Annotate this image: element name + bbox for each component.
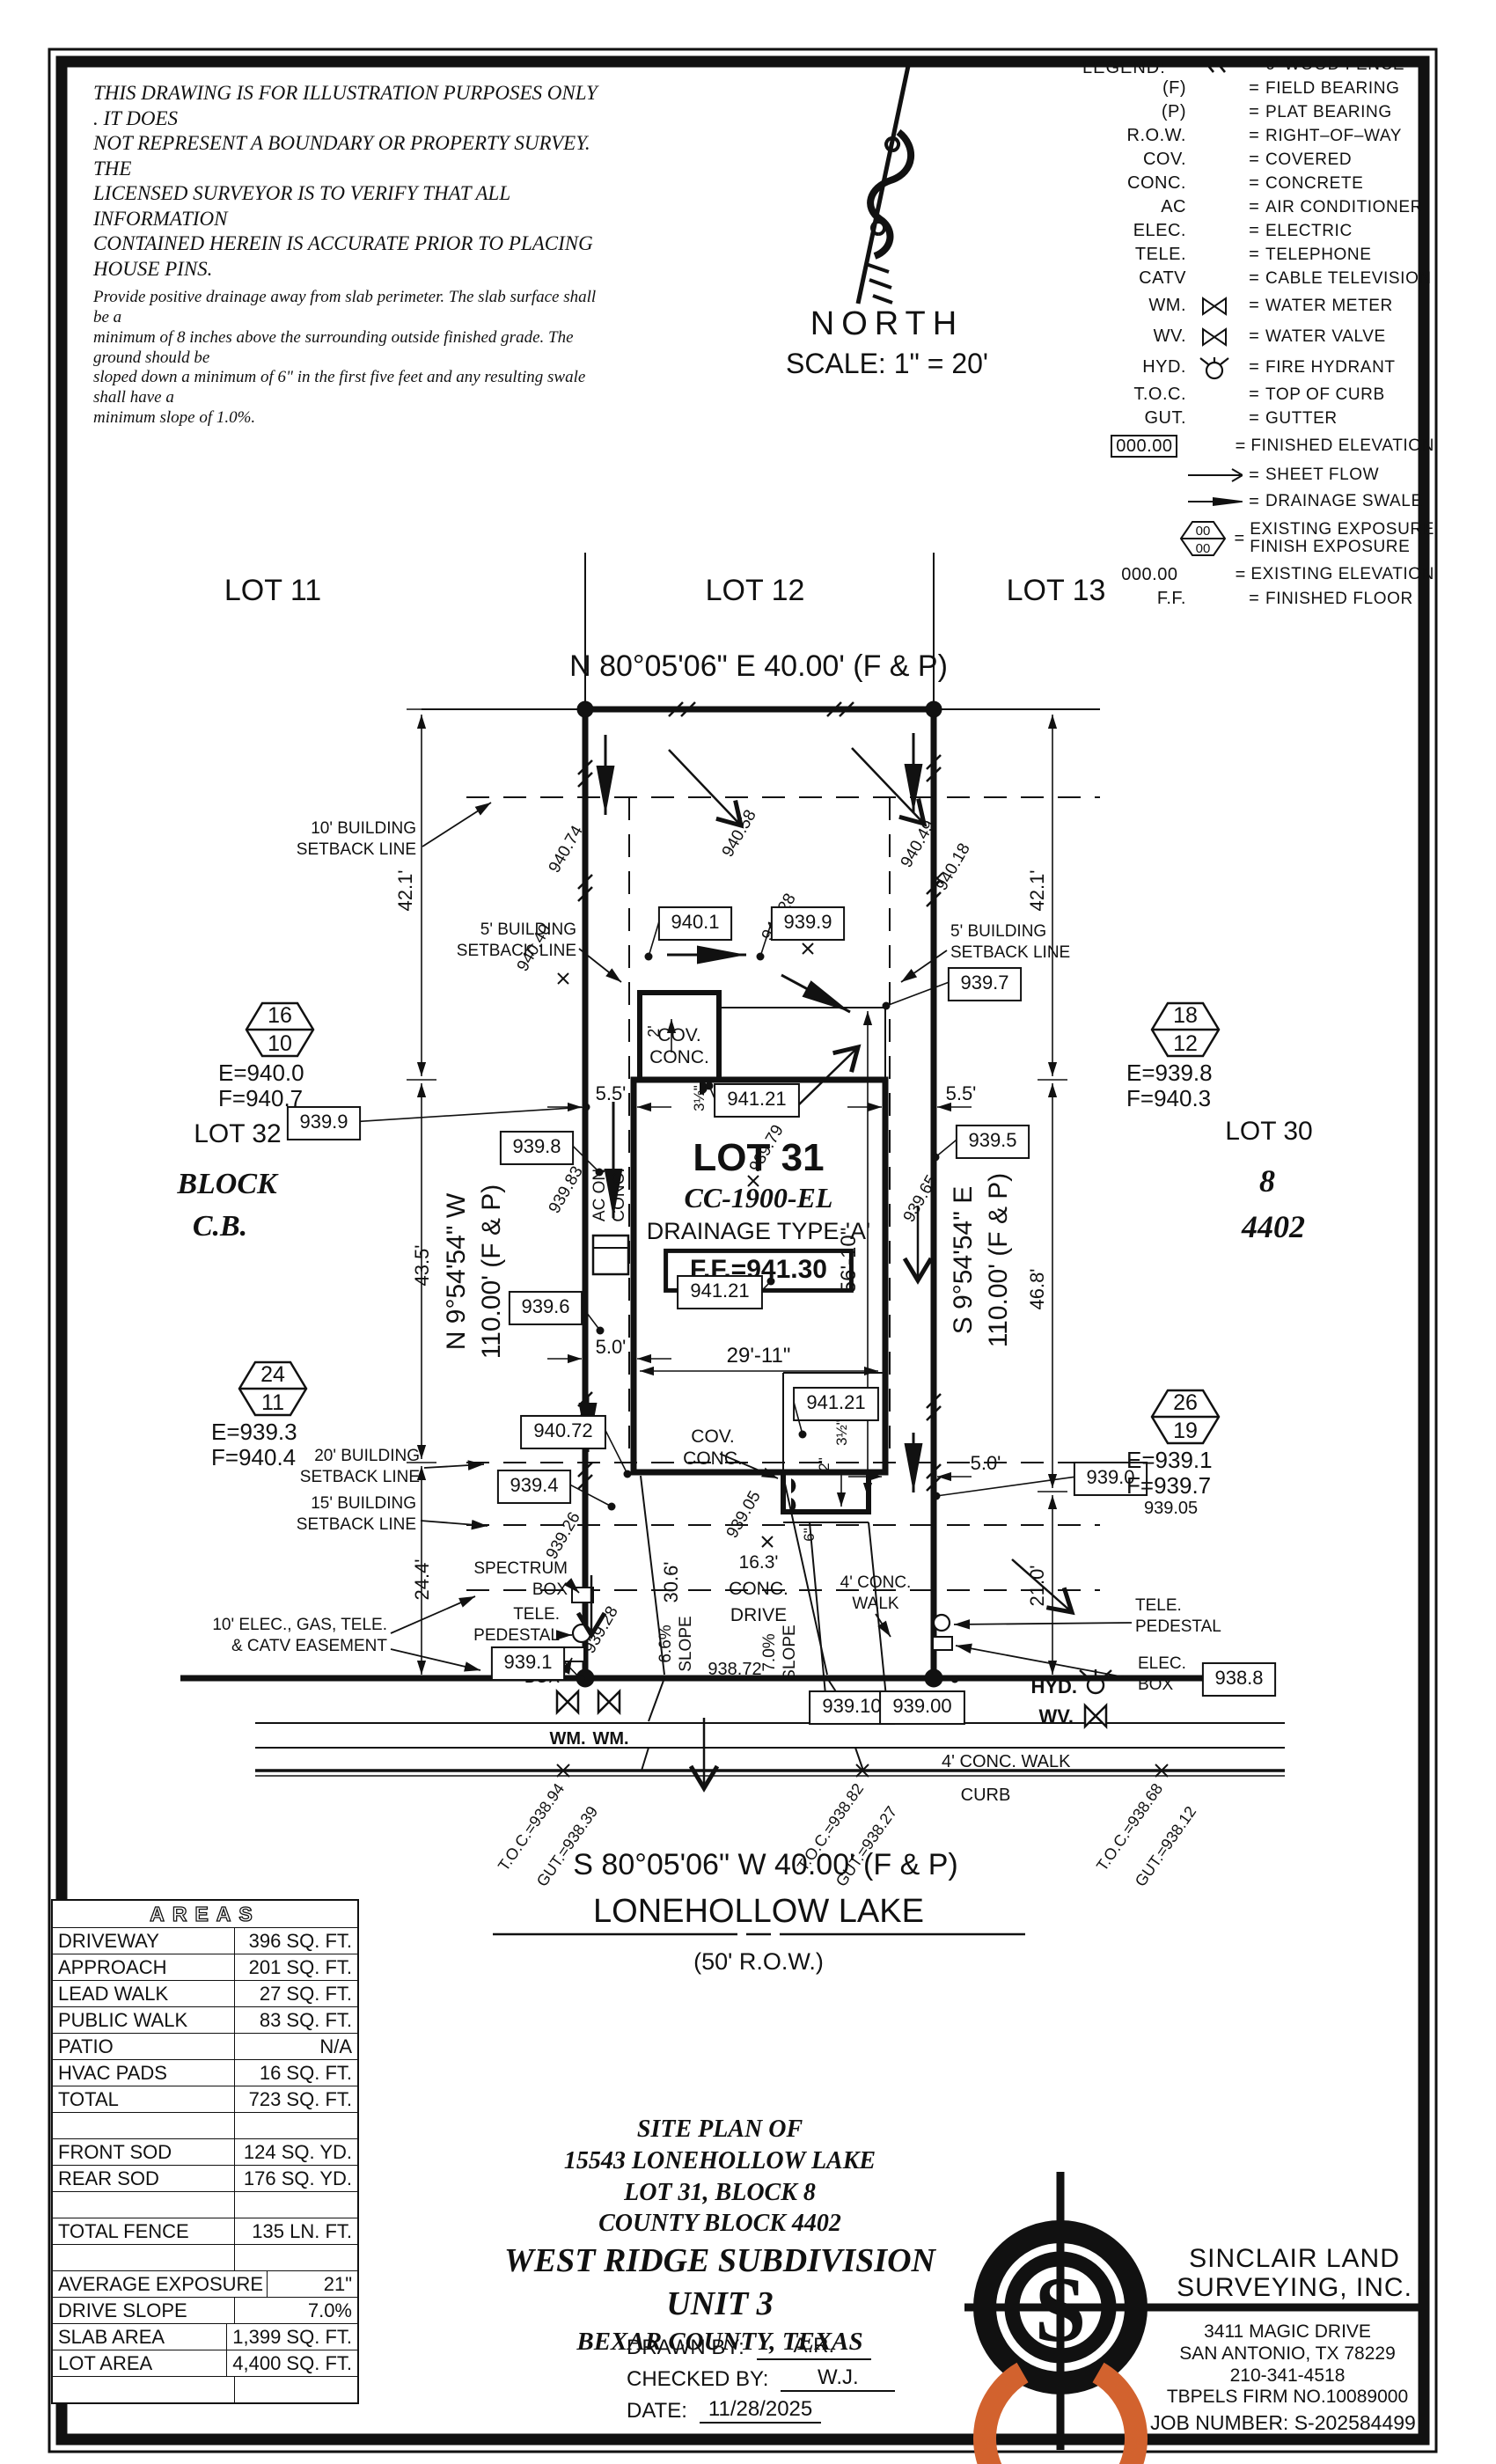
svg-text:00: 00 xyxy=(1196,524,1211,539)
plan-text-86: 30.6' xyxy=(660,1561,682,1602)
plan-text-42: CC-1900-EL xyxy=(685,1182,833,1214)
areas-label: DRIVE SLOPE xyxy=(53,2298,235,2323)
disclaimer-line: minimum of 8 inches above the surroundin… xyxy=(93,328,604,369)
areas-value: 723 SQ. FT. xyxy=(235,2088,357,2111)
leader-dot xyxy=(951,1676,959,1683)
legend-item-14: GUT.=GUTTER xyxy=(1079,407,1434,430)
plan-text-100: ELEC. xyxy=(1138,1654,1186,1673)
plan-text-73: 939.4 xyxy=(510,1474,558,1496)
plan-text-30: 939.9 xyxy=(299,1111,348,1133)
areas-row-7 xyxy=(53,2112,357,2138)
plan-text-107: WV. xyxy=(1038,1705,1074,1727)
legend-item-17: =DRAINAGE SWALE xyxy=(1079,488,1434,515)
legend-desc: CONCRETE xyxy=(1265,175,1363,193)
plan-text-92: SLOPE xyxy=(677,1616,695,1671)
titleblock-line-0: SITE PLAN OF xyxy=(456,2114,984,2145)
plan-text-2: LOT 11 xyxy=(224,574,321,607)
plan-text-52: 939.6 xyxy=(521,1295,569,1317)
areas-label: DRIVEWAY xyxy=(53,1928,235,1954)
areas-value: 4,400 SQ. FT. xyxy=(227,2352,357,2375)
legend-desc: WATER METER xyxy=(1265,297,1393,315)
areas-row-4: PATION/A xyxy=(53,2033,357,2059)
company-job-number: JOB NUMBER: S-202584499 xyxy=(1132,2411,1434,2435)
company-address-line-1: SAN ANTONIO, TX 78229 xyxy=(1146,2343,1429,2365)
legend-desc: FIRE HYDRANT xyxy=(1265,359,1396,377)
leader-dot xyxy=(883,1002,891,1010)
exposure-hex-value: 26 xyxy=(1173,1390,1198,1415)
exposure-elevation: E=939.3 xyxy=(211,1419,297,1445)
areas-value: 27 SQ. FT. xyxy=(235,1983,357,2006)
plan-text-23: COV. xyxy=(657,1025,700,1045)
exposure-hex-value: 16 xyxy=(268,1003,292,1028)
areas-label xyxy=(53,2192,235,2218)
areas-row-1: APPROACH201 SQ. FT. xyxy=(53,1954,357,1980)
areas-row-14: DRIVE SLOPE7.0% xyxy=(53,2297,357,2323)
leader-dot xyxy=(932,1154,940,1162)
plan-text-0: NORTH xyxy=(810,305,964,342)
legend-equals: = xyxy=(1243,221,1265,241)
exposure-elevation: F=940.7 xyxy=(218,1085,303,1111)
legend-abbr: F.F. xyxy=(1079,589,1186,609)
signature-block: DRAWN BY: A.R. CHECKED BY: W.J. DATE: 11… xyxy=(627,2334,895,2429)
leader-line xyxy=(649,921,659,957)
legend-desc: CABLE TELEVISION xyxy=(1265,270,1432,288)
disclaimer-paragraph-2: Provide positive drainage away from slab… xyxy=(93,288,604,429)
plan-text-17: SETBACK LINE xyxy=(457,942,576,960)
disclaimer-line: CONTAINED HEREIN IS ACCURATE PRIOR TO PL… xyxy=(93,231,604,282)
exposure-hex-value: 24 xyxy=(260,1362,285,1387)
plan-text-53: 941.21 xyxy=(690,1280,749,1302)
date-label: DATE: xyxy=(627,2399,687,2424)
company-address: 3411 MAGIC DRIVESAN ANTONIO, TX 78229210… xyxy=(1146,2321,1429,2409)
areas-value: 7.0% xyxy=(235,2299,357,2322)
areas-value: 176 SQ. YD. xyxy=(235,2167,357,2190)
legend-rows: =6' WOOD FENCE(F)=FIELD BEARING(P)=PLAT … xyxy=(1079,53,1434,611)
plan-text-70: SETBACK LINE xyxy=(300,1468,420,1486)
legend-desc: EXISTING ELEVATION xyxy=(1250,566,1434,583)
leader-dot xyxy=(933,1492,941,1500)
arrow-icon xyxy=(1186,467,1243,483)
legend-abbr: AC xyxy=(1079,197,1186,217)
plan-text-10: 42.1' xyxy=(1026,869,1048,911)
plan-text-106: HYD. xyxy=(1030,1676,1077,1698)
plan-text-26: 941.21 xyxy=(727,1088,786,1110)
legend-abbr: WM. xyxy=(1079,296,1186,316)
legend-equals: = xyxy=(1243,78,1265,99)
legend-item-19: 000.00=EXISTING ELEVATION xyxy=(1079,562,1434,587)
drawn-by-row: DRAWN BY: A.R. xyxy=(627,2334,895,2360)
plan-text-76: 21.0' xyxy=(1026,1565,1048,1606)
legend-abbr: (P) xyxy=(1079,102,1186,122)
legend-desc: FIELD BEARING xyxy=(1265,80,1399,98)
legend-equals: = xyxy=(1243,385,1265,405)
titleblock-line-3: COUNTY BLOCK 4402 xyxy=(456,2208,984,2240)
plan-text-6: 940.74 xyxy=(546,822,587,876)
disclaimer-line: sloped down a minimum of 6" in the first… xyxy=(93,368,604,408)
areas-label xyxy=(53,2113,235,2138)
plan-text-113: LONEHOLLOW LAKE xyxy=(593,1893,924,1930)
plan-text-35: LOT 32 xyxy=(194,1119,282,1148)
leader-line xyxy=(360,1107,586,1121)
plan-text-20: 940.1 xyxy=(671,911,719,933)
areas-label: SLAB AREA xyxy=(53,2324,227,2350)
plan-text-83: 10' ELEC., GAS, TELE. xyxy=(212,1616,387,1634)
plan-text-71: 15' BUILDING xyxy=(311,1494,416,1513)
plan-text-64: 2" xyxy=(816,1457,832,1471)
plan-text-37: C.B. xyxy=(193,1210,247,1243)
legend-item-15: 000.00=FINISHED ELEVATION xyxy=(1079,430,1434,462)
plan-text-105: WM. xyxy=(592,1729,628,1749)
areas-row-11: TOTAL FENCE135 LN. FT. xyxy=(53,2218,357,2244)
plan-text-91: 6.6% xyxy=(656,1624,675,1662)
leader-dot xyxy=(624,1470,632,1478)
legend-item-9: CATV=CABLE TELEVISION xyxy=(1079,267,1434,290)
areas-label: TOTAL xyxy=(53,2086,235,2112)
plan-text-109: 939.00 xyxy=(892,1695,951,1717)
legend-equals: = xyxy=(1243,150,1265,170)
plan-text-12: SETBACK LINE xyxy=(297,840,416,859)
legend-desc: EXISTING EXPOSUREFINISH EXPOSURE xyxy=(1250,521,1434,556)
plan-text-55: 56'-10" xyxy=(837,1228,861,1293)
plan-text-89: CONC. xyxy=(729,1579,788,1599)
plan-text-69: 20' BUILDING xyxy=(314,1447,420,1465)
legend-item-1: (F)=FIELD BEARING xyxy=(1079,77,1434,100)
legend-desc: TELEPHONE xyxy=(1265,246,1372,264)
areas-value: 83 SQ. FT. xyxy=(235,2009,357,2032)
legend-equals: = xyxy=(1243,55,1265,75)
titleblock-line-4: WEST RIDGE SUBDIVISION xyxy=(456,2240,984,2283)
plan-text-25: 2' xyxy=(645,1025,663,1037)
plan-text-79: TELE. xyxy=(513,1605,560,1624)
company-name-line1: SINCLAIR LAND xyxy=(1158,2244,1431,2273)
areas-label: REAR SOD xyxy=(53,2166,235,2191)
plan-text-16: 5' BUILDING xyxy=(480,920,576,939)
checked-by-value: W.J. xyxy=(781,2365,895,2392)
legend-desc: SHEET FLOW xyxy=(1265,466,1379,484)
legend-desc: FINISHED FLOOR xyxy=(1265,590,1413,608)
tele-pedestal-right-icon xyxy=(934,1615,950,1631)
plan-text-21: 939.9 xyxy=(783,911,832,933)
leader-dot xyxy=(583,1104,590,1111)
logo-letter: S xyxy=(1035,2258,1087,2361)
leader-line xyxy=(886,982,949,1006)
plan-text-88: 16.3' xyxy=(739,1552,779,1573)
plan-text-48: S 9°54'54" E xyxy=(949,1186,978,1335)
plan-text-80: PEDESTAL xyxy=(473,1626,560,1645)
exposure-elevation: E=939.1 xyxy=(1126,1447,1213,1473)
leader-dot xyxy=(597,1327,605,1335)
leader-dot xyxy=(799,1431,807,1439)
legend-equals: = xyxy=(1243,326,1265,347)
plan-text-111: CURB xyxy=(961,1786,1011,1805)
legend-desc: RIGHT–OF–WAY xyxy=(1265,128,1402,145)
areas-value: 21" xyxy=(268,2273,357,2296)
areas-row-0: DRIVEWAY396 SQ. FT. xyxy=(53,1927,357,1954)
plan-text-60: COV. xyxy=(691,1426,734,1447)
water-meter-icon xyxy=(598,1691,620,1712)
plan-text-40: 4402 xyxy=(1241,1209,1305,1244)
plan-text-96: 4' CONC. xyxy=(840,1573,912,1592)
plan-text-27: 3½" xyxy=(691,1085,708,1111)
plan-text-97: WALK xyxy=(852,1595,898,1613)
leader-dot xyxy=(767,1278,775,1286)
legend-item-5: CONC.=CONCRETE xyxy=(1079,172,1434,195)
plan-text-72: SETBACK LINE xyxy=(297,1515,416,1534)
exposure-hex-value: 19 xyxy=(1173,1419,1198,1443)
plan-text-33: AC ON xyxy=(590,1169,609,1221)
areas-row-12 xyxy=(53,2244,357,2270)
exposure-hex-value: 12 xyxy=(1173,1031,1198,1056)
legend: LEGEND: =6' WOOD FENCE(F)=FIELD BEARING(… xyxy=(1079,53,1434,611)
legend-item-10: WM.=WATER METER xyxy=(1079,290,1434,321)
plan-text-75: 24.4' xyxy=(411,1558,433,1600)
areas-value: 124 SQ. YD. xyxy=(235,2141,357,2164)
plan-text-94: SLOPE xyxy=(781,1624,799,1680)
legend-equals: = xyxy=(1243,102,1265,122)
areas-value: N/A xyxy=(235,2035,357,2058)
plan-text-28: 5.5' xyxy=(596,1082,627,1104)
disclaimer-line: THIS DRAWING IS FOR ILLUSTRATION PURPOSE… xyxy=(93,81,604,131)
leader-line xyxy=(936,1477,1074,1496)
plan-text-22: 939.7 xyxy=(960,972,1008,994)
swale-icon xyxy=(1186,494,1243,510)
legend-item-4: COV.=COVERED xyxy=(1079,148,1434,172)
exposure-hex-value: 11 xyxy=(261,1390,284,1415)
site-plan-sheet: { "colors": { "accent": "#d2622e", "ink"… xyxy=(0,0,1496,2464)
svg-text:00: 00 xyxy=(1196,541,1211,556)
areas-table: AREAS DRIVEWAY396 SQ. FT.APPROACH201 SQ.… xyxy=(51,1899,359,2404)
legend-desc: PLAT BEARING xyxy=(1265,104,1392,121)
areas-value: 1,399 SQ. FT. xyxy=(227,2326,357,2349)
plan-text-102: 939.1 xyxy=(503,1651,552,1673)
plan-text-65: 6" xyxy=(801,1528,818,1542)
legend-equals: = xyxy=(1243,357,1265,378)
plan-text-87: 939.05 xyxy=(723,1488,765,1542)
disclaimer-paragraph-1: THIS DRAWING IS FOR ILLUSTRATION PURPOSE… xyxy=(93,81,604,282)
plan-text-74: 939.26 xyxy=(543,1509,584,1563)
plan-text-9: 42.1' xyxy=(394,869,416,911)
plan-text-77: SPECTRUM xyxy=(473,1559,568,1578)
leader-dot xyxy=(608,1503,616,1511)
plan-text-49: 110.00' (F & P) xyxy=(984,1173,1013,1348)
plan-text-61: CONC. xyxy=(683,1448,743,1469)
legend-item-6: AC=AIR CONDITIONER xyxy=(1079,195,1434,219)
water-meter-icon xyxy=(557,1691,578,1712)
legend-item-8: TELE.=TELEPHONE xyxy=(1079,243,1434,267)
leader-line xyxy=(935,1140,957,1157)
plan-text-50: 43.5' xyxy=(411,1244,433,1286)
legend-desc: ELECTRIC xyxy=(1265,223,1353,240)
legend-item-3: R.O.W.=RIGHT–OF–WAY xyxy=(1079,124,1434,148)
exposure-elevation: F=939.7 xyxy=(1126,1472,1211,1499)
plan-text-95: 938.72 xyxy=(708,1660,761,1679)
legend-equals: = xyxy=(1243,126,1265,146)
areas-label: LOT AREA xyxy=(53,2350,227,2376)
plan-text-59: 940.72 xyxy=(533,1419,592,1441)
legend-equals: = xyxy=(1243,589,1265,609)
legend-item-12: HYD.=FIRE HYDRANT xyxy=(1079,352,1434,383)
leader-line xyxy=(605,1430,627,1474)
legend-equals: = xyxy=(1243,408,1265,429)
legend-equals: = xyxy=(1243,466,1265,486)
plan-text-11: 10' BUILDING xyxy=(311,819,416,838)
exposure-elevation: E=939.8 xyxy=(1126,1060,1213,1086)
bowtie-icon xyxy=(1186,296,1243,317)
plan-text-36: BLOCK xyxy=(176,1168,279,1200)
plan-text-46: N 9°54'54" W xyxy=(442,1192,471,1350)
titleblock-line-2: LOT 31, BLOCK 8 xyxy=(456,2177,984,2209)
checked-by-label: CHECKED BY: xyxy=(627,2367,768,2392)
legend-equals: = xyxy=(1243,197,1265,217)
plan-text-110: 4' CONC. WALK xyxy=(942,1752,1071,1771)
legend-equals: = xyxy=(1229,436,1250,457)
legend-equals: = xyxy=(1243,268,1265,289)
titleblock-line-5: UNIT 3 xyxy=(456,2283,984,2326)
disclaimer-note: THIS DRAWING IS FOR ILLUSTRATION PURPOSE… xyxy=(93,81,604,429)
areas-label: TOTAL FENCE xyxy=(53,2218,235,2244)
legend-abbr: T.O.C. xyxy=(1079,385,1186,405)
plan-text-29: 5.5' xyxy=(946,1082,977,1104)
company-name: SINCLAIR LAND SURVEYING, INC. xyxy=(1158,2244,1431,2302)
areas-row-5: HVAC PADS16 SQ. FT. xyxy=(53,2059,357,2086)
plan-text-84: & CATV EASEMENT xyxy=(231,1637,387,1655)
legend-desc: TOP OF CURB xyxy=(1265,386,1385,404)
leader-line xyxy=(570,1485,612,1507)
areas-row-9: REAR SOD176 SQ. YD. xyxy=(53,2165,357,2191)
areas-label: LEAD WALK xyxy=(53,1981,235,2006)
areas-label: HVAC PADS xyxy=(53,2060,235,2086)
plan-text-19: SETBACK LINE xyxy=(950,943,1070,962)
legend-item-18: 0000=EXISTING EXPOSUREFINISH EXPOSURE xyxy=(1079,515,1434,562)
areas-value: 201 SQ. FT. xyxy=(235,1956,357,1979)
plan-text-103: 938.8 xyxy=(1214,1667,1263,1689)
areas-row-2: LEAD WALK27 SQ. FT. xyxy=(53,1980,357,2006)
areas-value: 135 LN. FT. xyxy=(235,2220,357,2243)
areas-label xyxy=(53,2245,235,2270)
legend-equals: = xyxy=(1228,529,1250,549)
legend-item-20: F.F.=FINISHED FLOOR xyxy=(1079,587,1434,611)
legend-desc: DRAINAGE SWALE xyxy=(1265,493,1423,510)
plan-text-78: BOX xyxy=(532,1580,568,1599)
title-block: SITE PLAN OF15543 LONEHOLLOW LAKELOT 31,… xyxy=(456,2114,984,2358)
plan-text-66: 5.0' xyxy=(971,1452,1001,1474)
plan-text-58: 5.0' xyxy=(596,1336,627,1358)
legend-abbr: TELE. xyxy=(1079,245,1186,265)
areas-row-16: LOT AREA4,400 SQ. FT. xyxy=(53,2350,357,2376)
areas-table-rows: DRIVEWAY396 SQ. FT.APPROACH201 SQ. FT.LE… xyxy=(53,1927,357,2402)
legend-item-7: ELEC.=ELECTRIC xyxy=(1079,219,1434,243)
plan-text-99: PEDESTAL xyxy=(1135,1617,1221,1636)
plan-text-5: N 80°05'06" E 40.00' (F & P) xyxy=(569,649,948,683)
areas-row-3: PUBLIC WALK83 SQ. FT. xyxy=(53,2006,357,2033)
areas-row-8: FRONT SOD124 SQ. YD. xyxy=(53,2138,357,2165)
legend-equals: = xyxy=(1243,245,1265,265)
plan-text-57: 939.5 xyxy=(968,1129,1016,1151)
plan-text-90: DRIVE xyxy=(730,1605,787,1625)
disclaimer-line: minimum slope of 1.0%. xyxy=(93,408,604,429)
plan-text-112: S 80°05'06" W 40.00' (F & P) xyxy=(573,1848,957,1881)
legend-equals: = xyxy=(1243,492,1265,512)
legend-desc: GUTTER xyxy=(1265,410,1338,428)
plan-text-54: 29'-11" xyxy=(727,1344,791,1368)
legend-abbr: CONC. xyxy=(1079,173,1186,194)
plan-text-34: CONC. xyxy=(610,1168,628,1221)
hex-icon: 0000 xyxy=(1177,517,1229,560)
plan-text-7: 940.58 xyxy=(719,807,760,861)
drawn-by-value: A.R. xyxy=(757,2334,871,2360)
areas-row-13: AVERAGE EXPOSURE21" xyxy=(53,2270,357,2297)
plan-text-31: 939.8 xyxy=(512,1135,561,1157)
areas-label: FRONT SOD xyxy=(53,2139,235,2165)
areas-value: 16 SQ. FT. xyxy=(235,2062,357,2085)
areas-row-10 xyxy=(53,2191,357,2218)
fence-icon xyxy=(1186,55,1243,76)
legend-item-13: T.O.C.=TOP OF CURB xyxy=(1079,383,1434,407)
areas-value: 396 SQ. FT. xyxy=(235,1930,357,1953)
areas-label: PATIO xyxy=(53,2034,235,2059)
disclaimer-line: LICENSED SURVEYOR IS TO VERIFY THAT ALL … xyxy=(93,181,604,231)
legend-desc: WATER VALVE xyxy=(1265,328,1386,346)
plan-text-62: 941.21 xyxy=(806,1391,865,1413)
legend-abbr: CATV xyxy=(1079,268,1186,289)
exposure-elevation: E=940.0 xyxy=(218,1060,304,1086)
plan-text-47: 110.00' (F & P) xyxy=(477,1184,506,1360)
titleblock-line-1: 15543 LONEHOLLOW LAKE xyxy=(456,2145,984,2177)
legend-abbr: 000.00 xyxy=(1079,436,1177,457)
bowtie-icon xyxy=(1186,326,1243,348)
legend-equals: = xyxy=(1243,296,1265,316)
areas-row-6: TOTAL723 SQ. FT. xyxy=(53,2086,357,2112)
company-name-line2: SURVEYING, INC. xyxy=(1158,2273,1431,2302)
drawn-by-label: DRAWN BY: xyxy=(627,2336,744,2360)
legend-desc: FINISHED ELEVATION xyxy=(1250,437,1434,455)
areas-row-15: SLAB AREA1,399 SQ. FT. xyxy=(53,2323,357,2350)
company-address-line-0: 3411 MAGIC DRIVE xyxy=(1146,2321,1429,2343)
plan-text-93: 7.0% xyxy=(760,1633,779,1671)
checked-by-row: CHECKED BY: W.J. xyxy=(627,2365,895,2392)
plan-text-18: 5' BUILDING xyxy=(950,922,1046,941)
legend-item-2: (P)=PLAT BEARING xyxy=(1079,100,1434,124)
legend-item-16: =SHEET FLOW xyxy=(1079,462,1434,488)
exposure-hex-value: 10 xyxy=(268,1031,292,1056)
disclaimer-line: Provide positive drainage away from slab… xyxy=(93,288,604,328)
company-address-line-2: 210-341-4518 xyxy=(1146,2365,1429,2387)
plan-text-39: 8 xyxy=(1259,1163,1275,1199)
legend-abbr: GUT. xyxy=(1079,408,1186,429)
legend-desc: AIR CONDITIONER xyxy=(1265,199,1423,216)
plan-text-24: CONC. xyxy=(649,1047,709,1067)
areas-label xyxy=(53,2377,235,2402)
plan-text-1: SCALE: 1" = 20' xyxy=(786,348,988,379)
plan-text-68: 939.05 xyxy=(1144,1499,1198,1518)
areas-label: PUBLIC WALK xyxy=(53,2007,235,2033)
legend-abbr: COV. xyxy=(1079,150,1186,170)
legend-equals: = xyxy=(1229,565,1250,585)
leader-dot xyxy=(645,953,653,961)
date-value: 11/28/2025 xyxy=(700,2397,821,2424)
date-row: DATE: 11/28/2025 xyxy=(627,2397,895,2424)
areas-row-17 xyxy=(53,2376,357,2402)
legend-abbr: HYD. xyxy=(1079,357,1186,378)
legend-abbr: WV. xyxy=(1079,326,1186,347)
areas-table-title: AREAS xyxy=(53,1901,357,1927)
areas-label: AVERAGE EXPOSURE xyxy=(53,2271,268,2297)
leader-dot xyxy=(757,953,765,961)
legend-abbr: (F) xyxy=(1079,78,1186,99)
plan-text-98: TELE. xyxy=(1135,1596,1182,1615)
plan-text-108: 939.10 xyxy=(822,1695,881,1717)
areas-label: APPROACH xyxy=(53,1954,235,1980)
